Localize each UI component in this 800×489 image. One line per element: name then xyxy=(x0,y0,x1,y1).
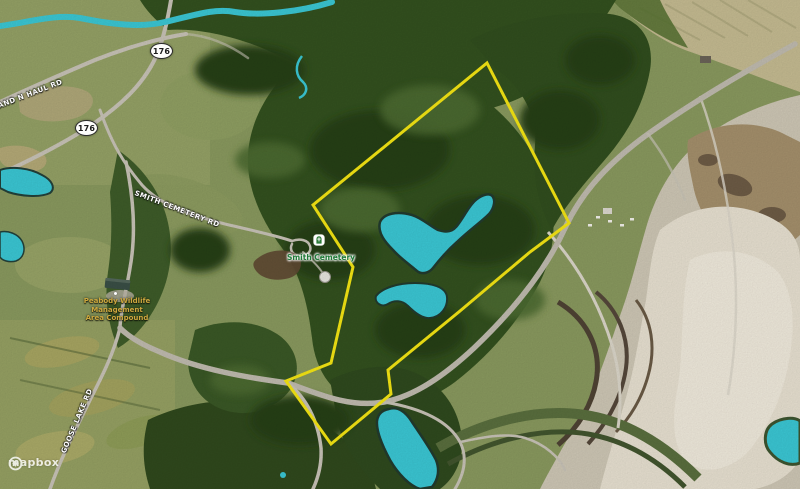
compound-label-line3: Area Compound xyxy=(84,314,151,323)
poi-label-peabody-compound: Peabody Wildlife Management Area Compoun… xyxy=(84,297,151,323)
mapbox-logo-icon xyxy=(8,456,23,471)
grain-texture xyxy=(0,0,800,489)
cemetery-icon xyxy=(313,234,325,246)
route-shield-176-north: 176 xyxy=(150,43,173,59)
satellite-imagery xyxy=(0,0,800,489)
poi-label-smith-cemetery: Smith Cemetery xyxy=(287,253,355,262)
compound-label-line2: Management xyxy=(84,306,151,315)
route-shield-176-south: 176 xyxy=(75,120,98,136)
mapbox-attribution-link[interactable]: mapbox xyxy=(8,456,59,469)
poi-dot-compound xyxy=(114,292,117,295)
map-canvas[interactable]: 176 176 AND N HAUL RD SMITH CEMETERY RD … xyxy=(0,0,800,489)
compound-label-line1: Peabody Wildlife xyxy=(84,297,151,306)
